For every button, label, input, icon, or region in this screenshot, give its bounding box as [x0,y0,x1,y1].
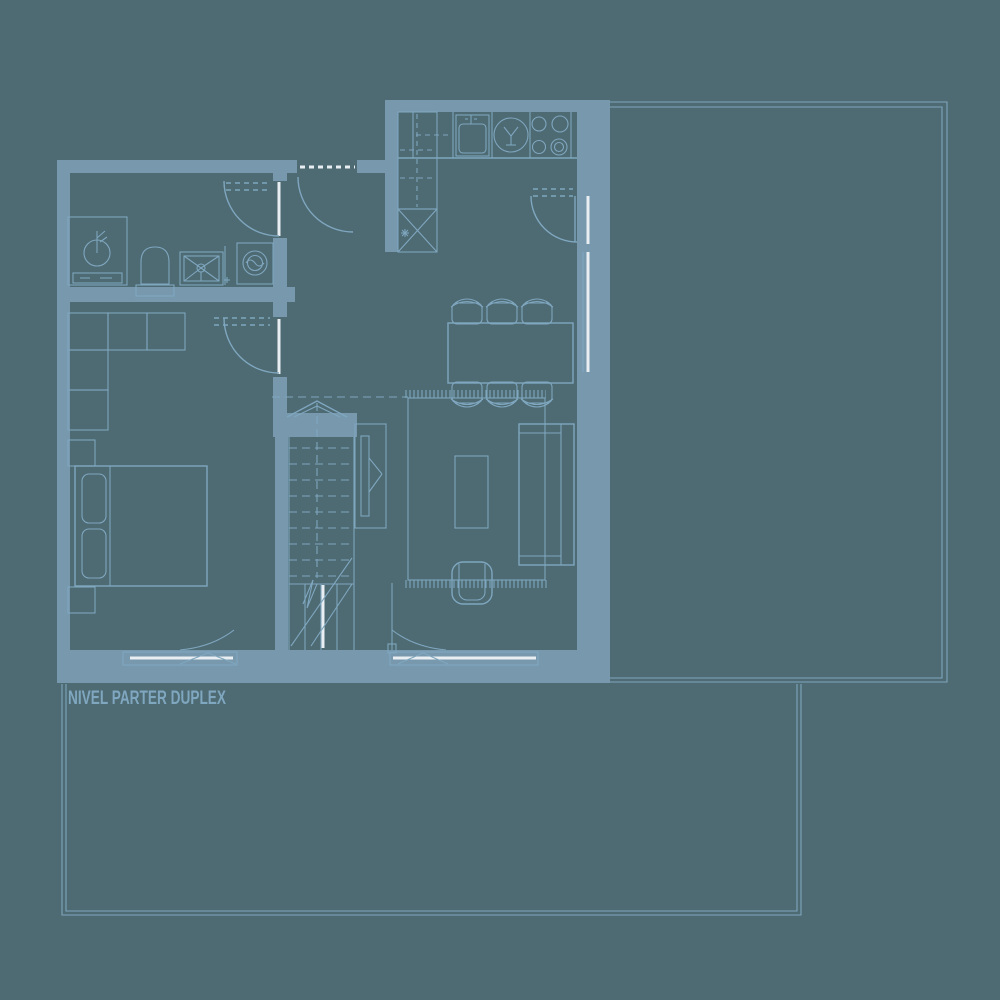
tv-unit [355,424,386,528]
bedroom-terrace-door-swing [180,630,234,650]
floor-plan-drawing: NIVEL PARTER DUPLEX [0,0,1000,1000]
terrace-outline [62,102,947,915]
shower [180,246,230,285]
pillow [82,474,106,523]
kitchen-terrace-door-swing [531,196,577,242]
cooktop [532,116,568,155]
plan-title: NIVEL PARTER DUPLEX [68,688,226,709]
kitchen-sink [456,115,489,156]
washbasin [68,217,127,285]
doors [180,177,577,650]
round-basin [494,118,528,152]
nightstand [68,587,95,613]
bedroom [68,313,207,613]
kitchen [398,112,577,252]
wardrobe [68,313,185,430]
entry-door-swing [298,177,353,232]
washing-machine [237,243,273,284]
sofa [519,424,574,565]
living-terrace-door-swing [392,630,446,650]
bathroom-door-swing [224,181,279,236]
dining-chair [451,299,483,324]
nightstand [68,440,95,466]
bedroom-door-swing [224,318,279,373]
coffee-table [455,456,488,528]
pillow [82,529,106,578]
dining-table [448,323,573,383]
dining-chair [486,299,518,324]
stairs [287,401,396,653]
floor-plan: NIVEL PARTER DUPLEX [0,0,1000,1000]
bed [75,466,207,586]
dining-chair [521,299,553,324]
bathroom [68,217,273,296]
tall-cabinet [398,112,437,209]
refrigerator [398,209,437,252]
rug [405,390,548,588]
